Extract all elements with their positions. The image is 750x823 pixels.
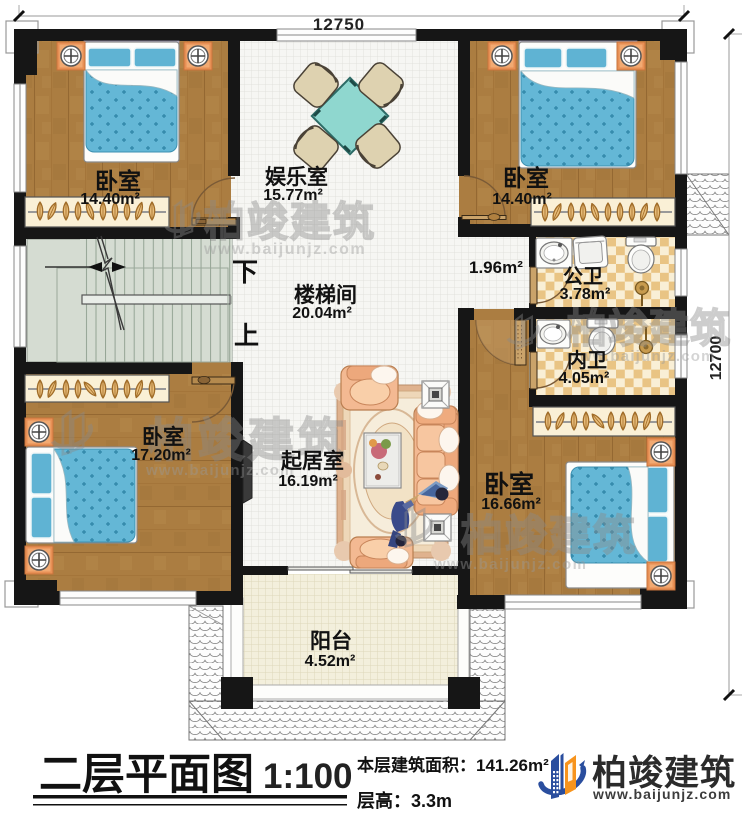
svg-text:楼梯间: 楼梯间 bbox=[294, 283, 357, 307]
svg-text:www.baijunjz.com: www.baijunjz.com bbox=[592, 786, 731, 802]
svg-text:14.40m²: 14.40m² bbox=[80, 191, 140, 208]
svg-text:卧室: 卧室 bbox=[142, 425, 184, 449]
svg-text:www.baijunjz.com: www.baijunjz.com bbox=[203, 241, 366, 258]
svg-text:内卫: 内卫 bbox=[567, 348, 607, 372]
svg-text:二层平面图: 二层平面图 bbox=[39, 751, 254, 799]
svg-text:20.04m²: 20.04m² bbox=[292, 305, 352, 322]
svg-text:阳台: 阳台 bbox=[310, 629, 352, 653]
svg-text:柏竣建筑: 柏竣建筑 bbox=[204, 199, 376, 245]
svg-text:17.20m²: 17.20m² bbox=[131, 447, 191, 464]
svg-text:12750: 12750 bbox=[313, 15, 365, 34]
svg-text:16.66m²: 16.66m² bbox=[481, 496, 541, 513]
svg-text:上: 上 bbox=[234, 322, 259, 350]
svg-text:1.96m²: 1.96m² bbox=[469, 258, 523, 277]
svg-text:www.baijunjz.com: www.baijunjz.com bbox=[145, 462, 295, 479]
svg-text:卧室: 卧室 bbox=[503, 165, 549, 191]
svg-text:柏竣建筑: 柏竣建筑 bbox=[567, 307, 731, 351]
svg-text:层高：3.3m: 层高：3.3m bbox=[357, 790, 452, 811]
svg-text:娱乐室: 娱乐室 bbox=[265, 165, 328, 189]
svg-text:4.05m²: 4.05m² bbox=[559, 370, 610, 387]
svg-text:起居室: 起居室 bbox=[280, 449, 344, 473]
svg-text:15.77m²: 15.77m² bbox=[263, 187, 323, 204]
svg-text:下: 下 bbox=[232, 257, 258, 287]
svg-text:14.40m²: 14.40m² bbox=[492, 191, 552, 208]
svg-text:本层建筑面积：141.26m²: 本层建筑面积：141.26m² bbox=[357, 755, 549, 775]
svg-text:柏竣建筑: 柏竣建筑 bbox=[461, 512, 637, 559]
svg-text:公卫: 公卫 bbox=[563, 265, 603, 288]
svg-text:3.78m²: 3.78m² bbox=[560, 286, 611, 303]
svg-text:www.baijunjz.com: www.baijunjz.com bbox=[433, 556, 587, 573]
svg-text:1:100: 1:100 bbox=[263, 757, 353, 796]
svg-text:卧室: 卧室 bbox=[484, 470, 534, 499]
svg-text:16.19m²: 16.19m² bbox=[278, 473, 338, 490]
svg-text:4.52m²: 4.52m² bbox=[305, 653, 356, 670]
